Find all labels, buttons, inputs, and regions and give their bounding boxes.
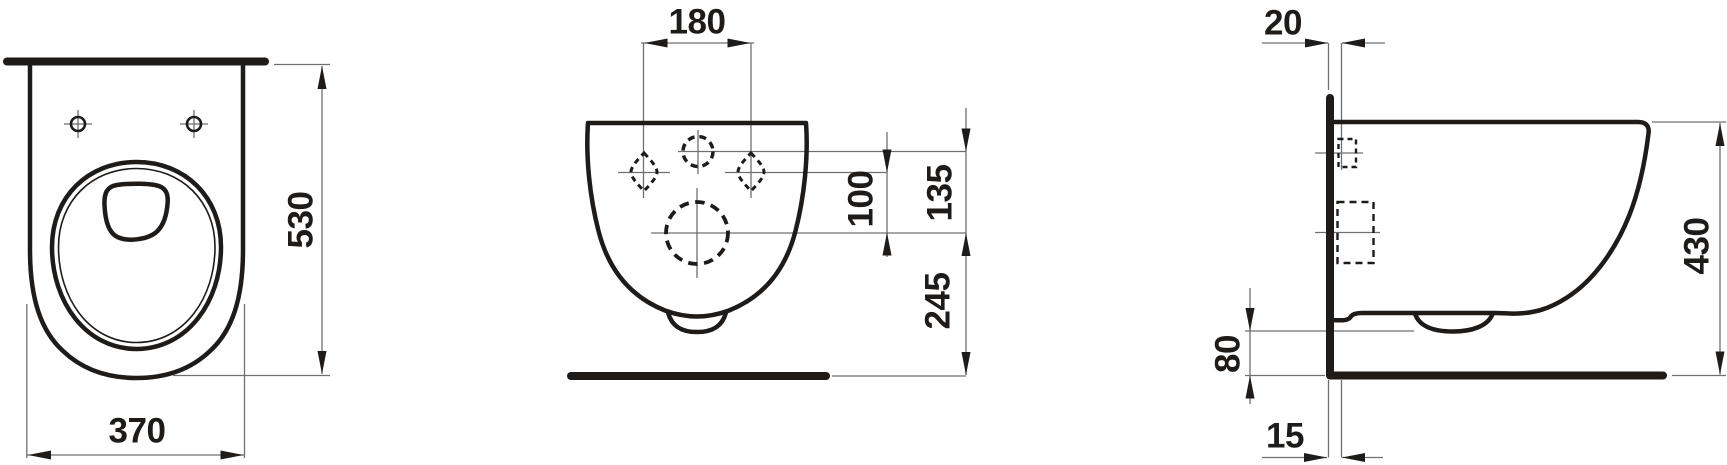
- arrow-down-icon: [318, 351, 327, 374]
- arrow-down-icon: [962, 129, 971, 152]
- arrow-up-icon: [318, 66, 327, 89]
- dimension-wall-gap-20: 20: [1262, 4, 1385, 48]
- dimension-width-370: 370: [27, 412, 244, 460]
- arrow-up-icon: [1246, 376, 1255, 399]
- arrow-left-icon: [1342, 453, 1365, 462]
- arrow-right-icon: [221, 451, 244, 460]
- rear-view: 180 100 135 245: [571, 3, 971, 377]
- dim-label-20: 20: [1264, 4, 1302, 43]
- dim-label-530: 530: [282, 192, 321, 249]
- dim-label-430: 430: [1678, 218, 1717, 275]
- dimension-depth-530: 530: [282, 66, 327, 374]
- dim-label-15: 15: [1266, 417, 1304, 456]
- dimension-bolt-spacing-180: 180: [641, 3, 754, 48]
- arrow-left-icon: [1342, 39, 1365, 48]
- dimension-wall-gap-15: 15: [1262, 417, 1383, 463]
- dimension-bolt-to-outlet-100: 100: [842, 132, 892, 257]
- dim-label-370: 370: [109, 412, 166, 451]
- arrow-left-icon: [28, 451, 51, 460]
- seat-hole-right: [180, 110, 208, 138]
- seat-hole-left: [64, 110, 92, 138]
- arrow-right-icon: [728, 39, 751, 48]
- top-view: 530 370: [7, 62, 330, 460]
- dimension-inlet-outlet-floor: 135 245: [919, 108, 971, 375]
- dimension-height-430: 430: [1678, 123, 1725, 375]
- arrow-up-icon: [1716, 123, 1725, 146]
- dim-label-135: 135: [921, 165, 960, 222]
- arrow-left-icon: [645, 39, 668, 48]
- arrow-right-icon: [1305, 39, 1328, 48]
- arrow-up-icon: [883, 233, 892, 256]
- arrow-down-icon: [1716, 352, 1725, 375]
- rim-outline: [52, 162, 221, 349]
- bowl-side-outline: [1333, 122, 1649, 320]
- arrow-right-icon: [1304, 453, 1327, 462]
- rim-inner-edge: [59, 169, 216, 343]
- dim-label-245: 245: [919, 273, 958, 330]
- dimension-bottom-clearance-80: 80: [1209, 288, 1255, 404]
- arrow-down-icon: [962, 352, 971, 375]
- dim-label-100: 100: [842, 171, 881, 228]
- technical-drawing-sheet: 530 370: [0, 0, 1727, 465]
- arrow-down-icon: [1246, 308, 1255, 331]
- arrow-down-icon: [883, 150, 892, 173]
- wall-and-floor-line: [1330, 98, 1663, 376]
- dim-label-180: 180: [669, 3, 726, 42]
- trap-outline: [1415, 314, 1493, 332]
- arrow-up-icon: [962, 233, 971, 256]
- water-outline: [104, 184, 167, 240]
- side-view: 20 80 15 430: [1209, 4, 1727, 463]
- dim-label-80: 80: [1209, 335, 1248, 373]
